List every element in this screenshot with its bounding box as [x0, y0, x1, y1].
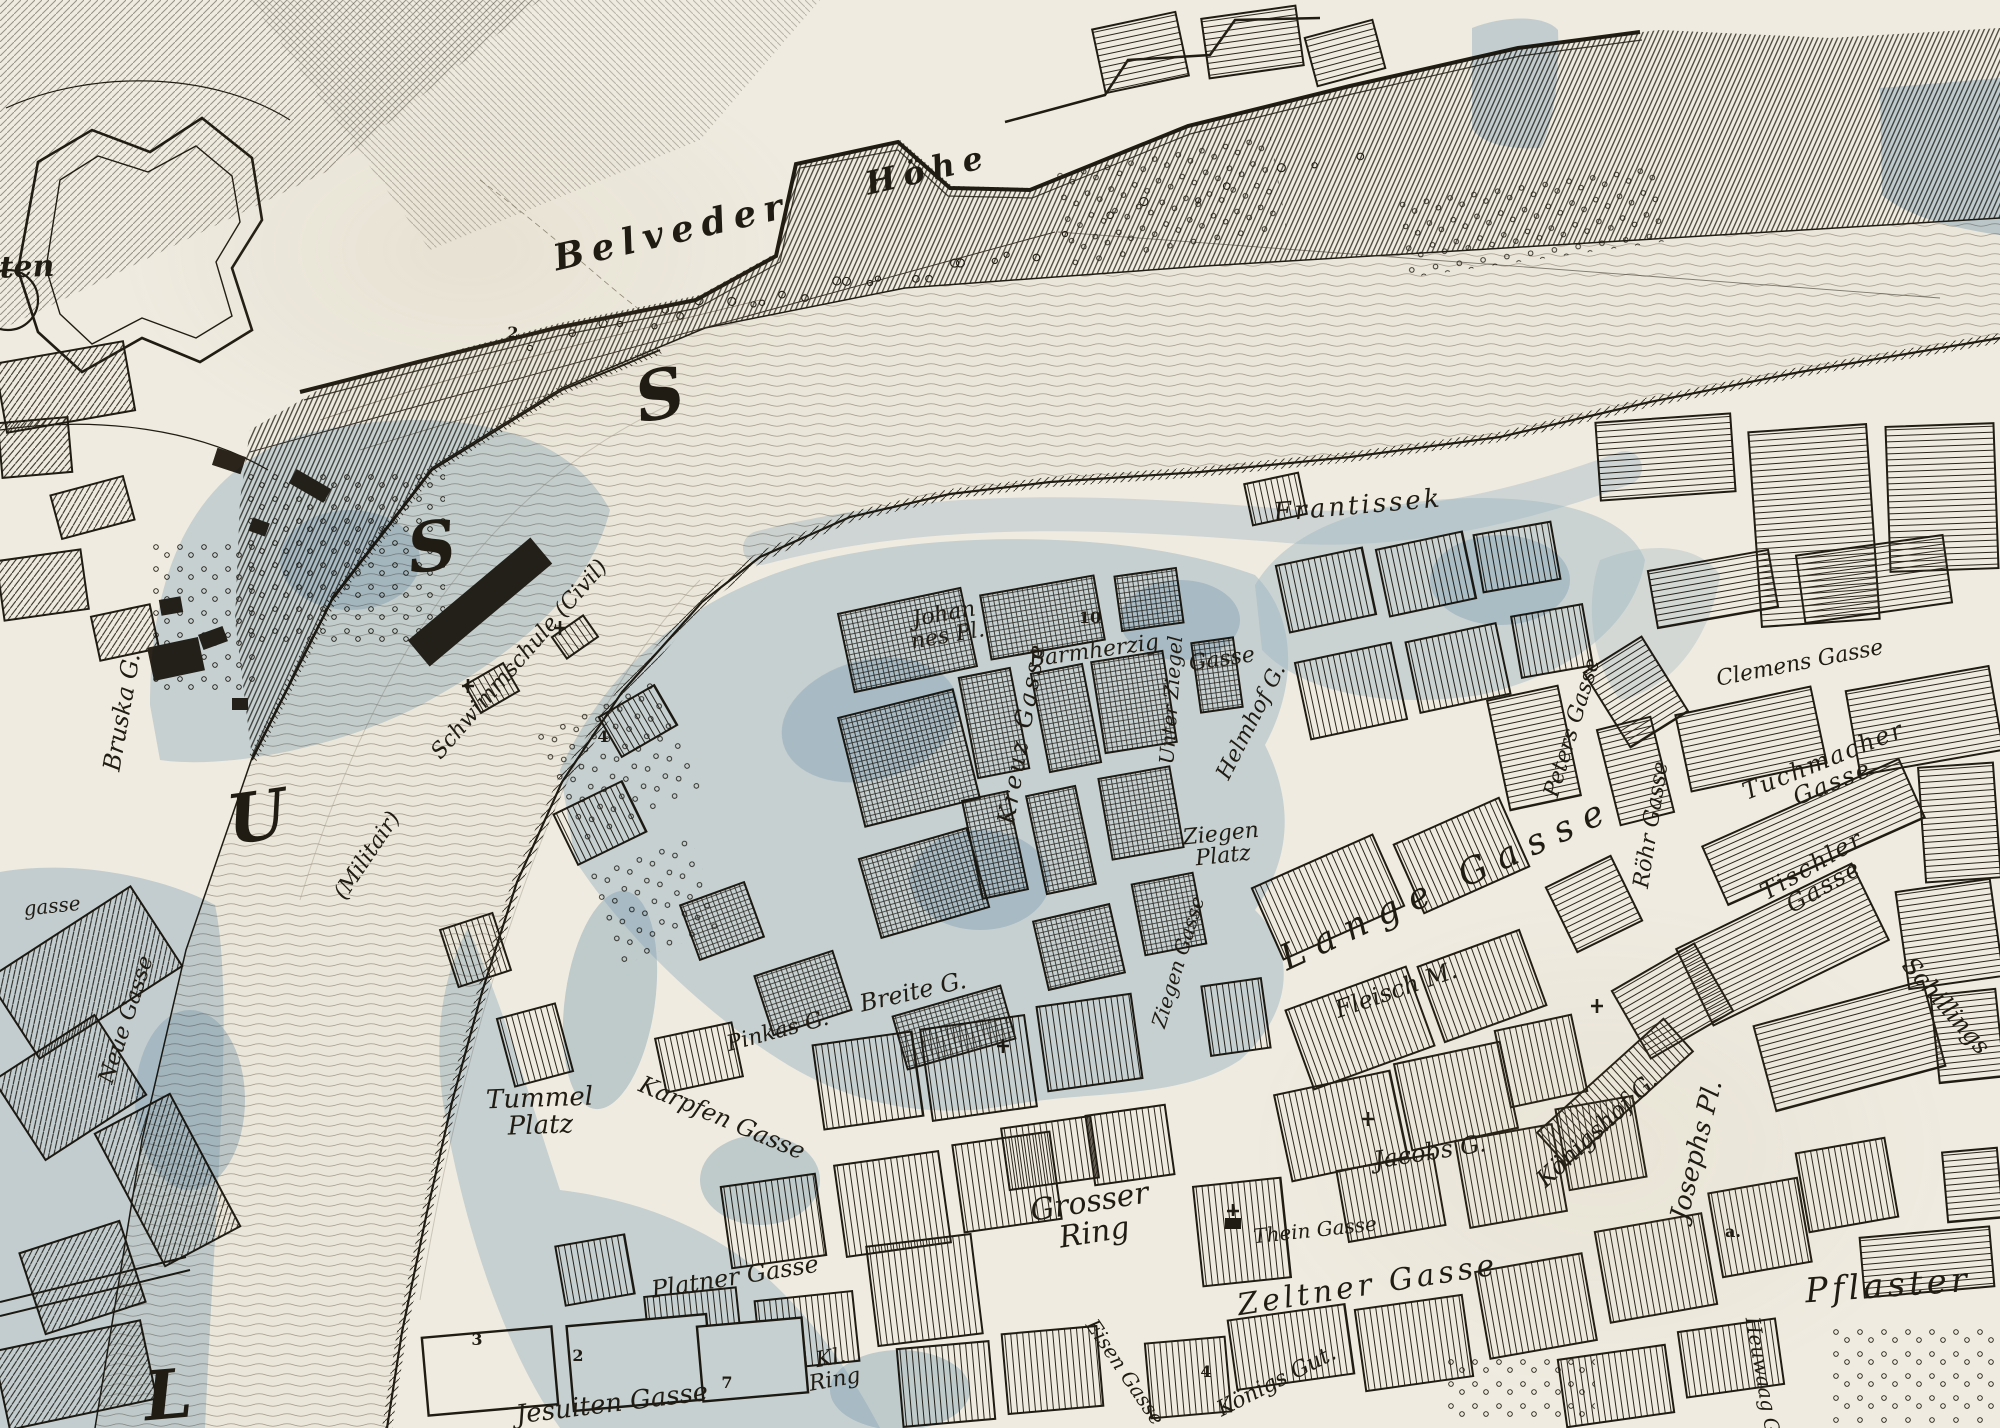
- city-block: [1896, 879, 2000, 989]
- city-block: [0, 549, 89, 620]
- city-block: [1558, 1345, 1674, 1427]
- city-block: [1678, 1319, 1784, 1398]
- city-block: [1336, 1154, 1445, 1242]
- city-block: [1002, 1326, 1104, 1414]
- city-block: [1145, 1337, 1231, 1419]
- city-block: [866, 1234, 982, 1346]
- city-block: [1918, 763, 2000, 883]
- city-block: [1193, 1178, 1291, 1287]
- city-block: [1228, 1304, 1355, 1390]
- city-block: [1001, 1116, 1099, 1190]
- city-block: [1201, 6, 1303, 79]
- city-block: [1796, 1138, 1899, 1232]
- city-block: [1355, 1295, 1473, 1391]
- city-block: [1475, 1253, 1597, 1358]
- city-block: [1708, 1178, 1811, 1277]
- city-block: [1931, 989, 2000, 1083]
- map-canvas: [0, 0, 2000, 1428]
- city-block: [1860, 1226, 1995, 1297]
- city-block: [1942, 1148, 2000, 1223]
- city-block: [1595, 1213, 1717, 1322]
- garden-dots: [1830, 1325, 2000, 1425]
- historic-city-map: tenBelvederHöheFrantissekSchwimmschule (…: [0, 0, 2000, 1428]
